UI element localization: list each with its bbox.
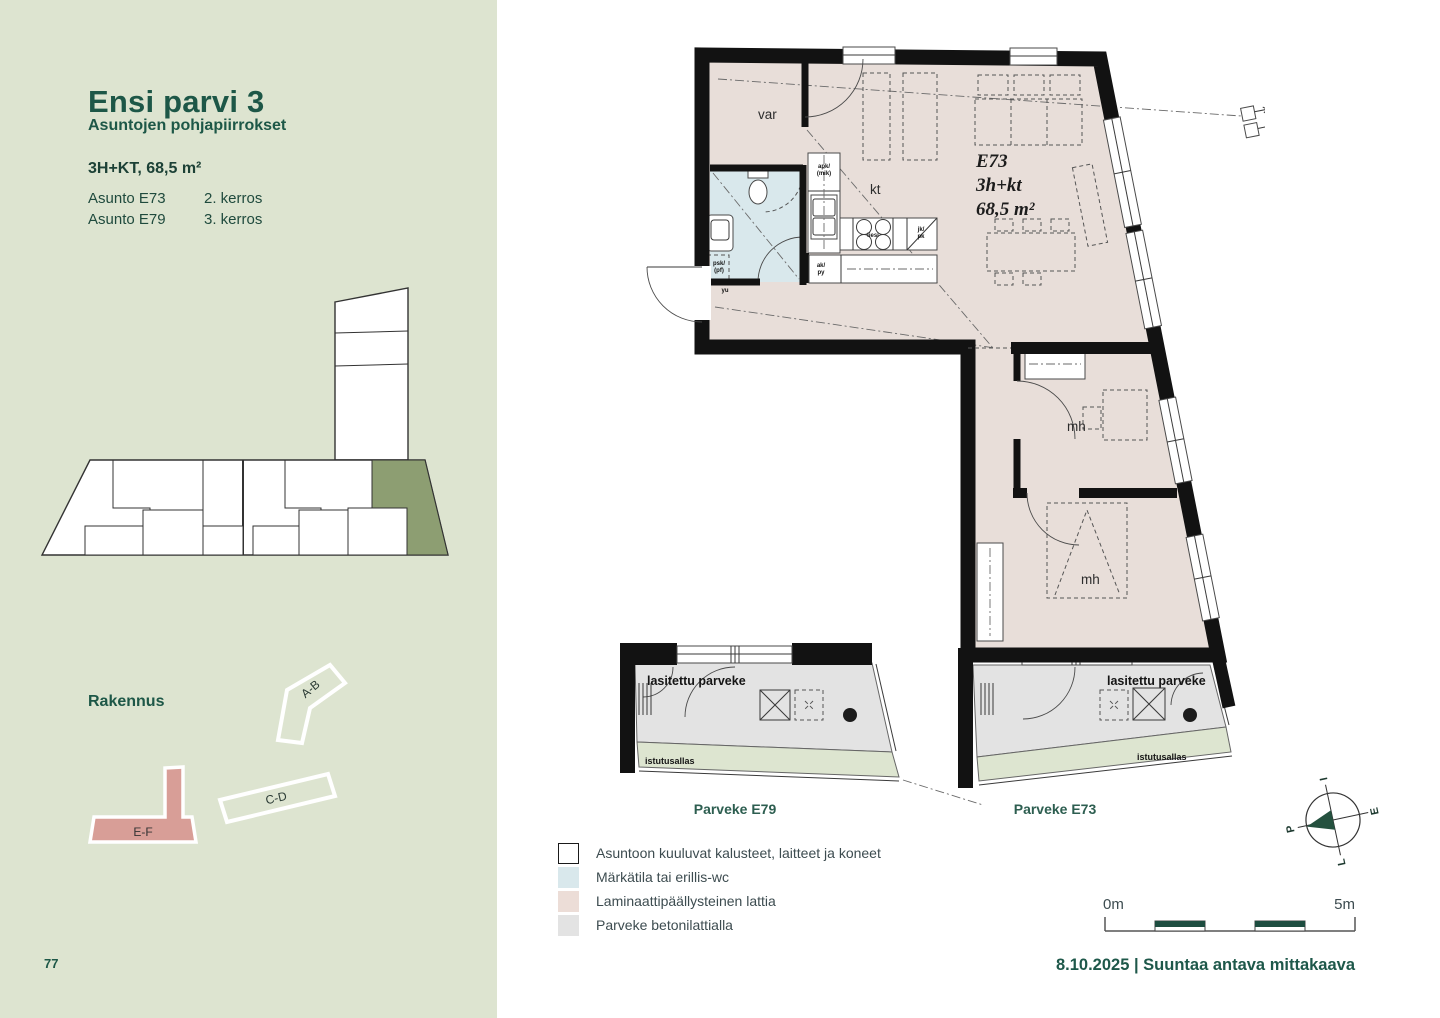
legend-row: Laminaattipäällysteinen lattia — [558, 889, 881, 913]
caption-parveke-e73: Parveke E73 — [1014, 801, 1097, 817]
stove-label: liesi — [867, 233, 879, 239]
legend-row: Parveke betonilattialla — [558, 913, 881, 937]
unit-list: Asunto E732. kerros Asunto E793. kerros — [88, 188, 262, 230]
unit-id-label: E73 — [975, 151, 1008, 172]
legend-swatch-balcony — [558, 915, 579, 936]
planter-label: istutusallas — [645, 756, 695, 766]
legend-row: Märkätila tai erillis-wc — [558, 865, 881, 889]
dishwasher-label: apk/ — [818, 164, 830, 170]
tower-outline — [335, 288, 408, 460]
compass-bottom-label: L — [1335, 857, 1348, 866]
building-cd-label: C-D — [264, 789, 288, 808]
scale-bar: 0m 5m — [1093, 893, 1373, 938]
unit-floor: 3. kerros — [204, 211, 262, 228]
site-diagram: A-B C-D E-F — [70, 640, 400, 875]
legend-swatch-wetroom — [558, 867, 579, 888]
unit-area-label: 68,5 m² — [976, 199, 1036, 220]
unit-floor: 2. kerros — [204, 190, 262, 207]
compass-top-label: I — [1318, 776, 1330, 781]
building-ab-outline — [278, 665, 345, 743]
room-label-mh2: mh — [1081, 572, 1100, 587]
dishwasher-label2: (mik) — [817, 171, 831, 177]
room-label-var: var — [758, 107, 777, 122]
unit-type-label: 3h+kt — [975, 175, 1022, 196]
cabinet-label: ak/ — [817, 263, 826, 269]
room-label-mh1: mh — [1067, 419, 1086, 434]
building-ef-label: E-F — [133, 825, 152, 839]
washer-label2: (pf) — [714, 268, 724, 274]
balcony-e79: lasitettu parveke istutusallas — [620, 643, 899, 781]
floor-plan: lasitettu parveke istutusallas lasitettu… — [555, 15, 1265, 830]
caption-parveke-e79: Parveke E79 — [694, 801, 777, 817]
compass-rose: I E L P — [1283, 770, 1383, 870]
balcony-label: lasitettu parveke — [1107, 674, 1206, 688]
sidebar: Ensi parvi 3 Asuntojen pohjapiirrokset 3… — [0, 0, 497, 1018]
balcony-label: lasitettu parveke — [647, 674, 746, 688]
legend-row: Asuntoon kuuluvat kalusteet, laitteet ja… — [558, 841, 881, 865]
page-number: 77 — [44, 956, 58, 971]
legend: Asuntoon kuuluvat kalusteet, laitteet ja… — [558, 841, 881, 937]
legend-swatch-laminate — [558, 891, 579, 912]
legend-label: Laminaattipäällysteinen lattia — [596, 893, 776, 909]
legend-label: Asuntoon kuuluvat kalusteet, laitteet ja… — [596, 845, 881, 861]
unit-row: Asunto E732. kerros — [88, 188, 262, 209]
page-title: Ensi parvi 3 — [88, 84, 264, 120]
floor-plan-svg: lasitettu parveke istutusallas lasitettu… — [555, 15, 1265, 825]
compass-left-label: P — [1284, 824, 1297, 834]
fridge-label2: pk — [917, 234, 925, 240]
brochure-page: { "page": { "number": "77" }, "sidebar":… — [0, 0, 1440, 1018]
unit-row: Asunto E793. kerros — [88, 209, 262, 230]
scale-end-label: 5m — [1334, 896, 1355, 913]
compass-right-label: E — [1368, 806, 1381, 816]
legend-swatch-fixtures — [558, 843, 579, 864]
apartment-type: 3H+KT, 68,5 m² — [88, 160, 201, 178]
washer-label: psk/ — [713, 261, 725, 267]
cabinet-label2: py — [817, 270, 825, 276]
unit-name: Asunto E79 — [88, 209, 204, 230]
unit-name: Asunto E73 — [88, 188, 204, 209]
legend-label: Parveke betonilattialla — [596, 917, 733, 933]
room-label-kt: kt — [870, 182, 881, 197]
scale-start-label: 0m — [1103, 896, 1124, 913]
planter-label: istutusallas — [1137, 752, 1187, 762]
fridge-label: jk/ — [917, 227, 925, 233]
entry-label: yu — [721, 288, 728, 294]
legend-label: Märkätila tai erillis-wc — [596, 869, 729, 885]
page-subtitle: Asuntojen pohjapiirrokset — [88, 117, 286, 135]
footer-date-caption: 8.10.2025 | Suuntaa antava mittakaava — [1056, 956, 1355, 975]
building-section-diagram — [35, 280, 455, 570]
vent-detail — [1241, 103, 1265, 137]
balcony-e73: lasitettu parveke istutusallas — [958, 648, 1232, 788]
